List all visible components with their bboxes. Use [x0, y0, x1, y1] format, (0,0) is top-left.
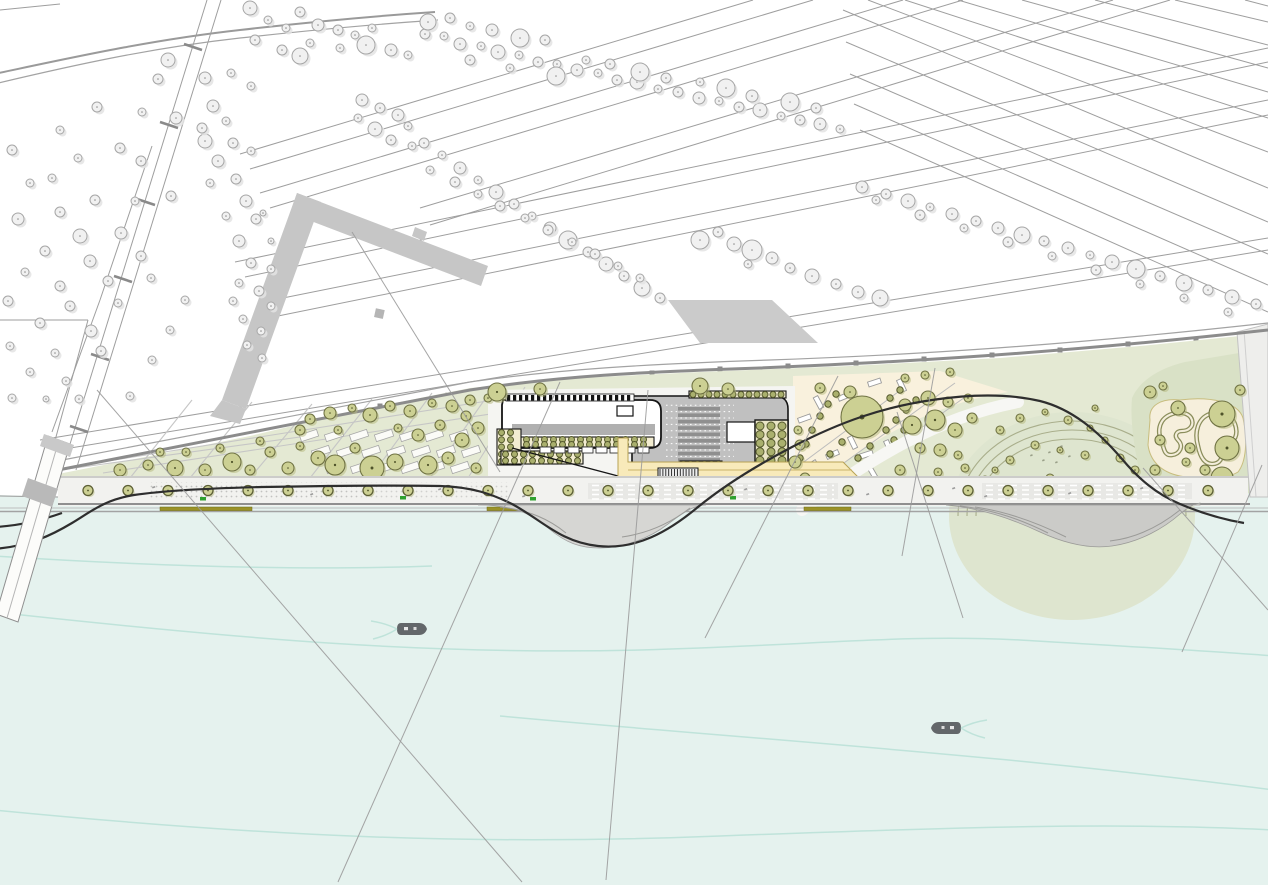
shrub-dot — [530, 458, 536, 464]
context-tree-center — [738, 106, 740, 108]
context-tree-center — [59, 211, 61, 213]
context-tree-center — [771, 257, 773, 259]
context-tree-center — [1207, 289, 1209, 291]
street-tree-center — [847, 490, 849, 492]
context-tree-center — [374, 128, 376, 130]
park-tree-center — [971, 417, 973, 419]
park-tree-center — [1162, 385, 1164, 387]
context-tree-center — [281, 49, 283, 51]
context-tree-center — [249, 7, 251, 9]
park-tree-center — [1034, 444, 1036, 446]
park-tree-center — [417, 434, 419, 436]
context-tree-center — [811, 275, 813, 277]
hall-bench — [540, 447, 551, 453]
shrub-dot — [539, 458, 545, 464]
plaza-tree — [893, 417, 899, 423]
facade-hatch-bar — [615, 395, 618, 401]
plaza-tree — [855, 455, 861, 461]
context-tree-center — [45, 398, 47, 400]
context-tree-center — [29, 182, 31, 184]
shrub-dot — [512, 458, 518, 464]
context-tree-center — [585, 59, 587, 61]
hatch-bars — [507, 395, 630, 401]
context-tree-center — [204, 140, 206, 142]
context-tree-center — [875, 199, 877, 201]
park-tree-center — [334, 464, 336, 466]
park-tree-center — [439, 424, 441, 426]
context-tree-center — [390, 139, 392, 141]
park-tree-center — [949, 371, 951, 373]
park-tree-center — [727, 388, 729, 390]
park-tree-center — [939, 449, 941, 451]
context-tree-center — [90, 330, 92, 332]
boat-window — [414, 627, 417, 630]
context-tree-center — [919, 214, 921, 216]
context-tree-center — [1051, 255, 1053, 257]
context-tree-center — [261, 357, 263, 359]
facade-hatch-bar — [567, 395, 570, 401]
boat-window — [942, 726, 945, 729]
context-tree-center — [429, 169, 431, 171]
hall-gray-strip — [512, 424, 655, 435]
plaza-tree — [867, 443, 873, 449]
park-tree-center — [954, 429, 956, 431]
facade-hatch-bar — [603, 395, 606, 401]
context-tree-center — [499, 205, 501, 207]
context-tree-center — [225, 215, 227, 217]
court-shrub — [767, 422, 775, 430]
park-tree-center — [699, 385, 701, 387]
street-tree-center — [407, 490, 409, 492]
context-tree-center — [571, 241, 573, 243]
site-plan-svg — [0, 0, 1268, 885]
court-shrub — [756, 422, 764, 430]
street-tree-center — [687, 490, 689, 492]
park-tree-center — [1159, 439, 1161, 441]
park-tree-center — [964, 467, 966, 469]
street-tree-center — [567, 490, 569, 492]
context-tree-center — [157, 78, 159, 80]
context-tree-center — [733, 243, 735, 245]
park-tree-center — [1067, 419, 1069, 421]
context-tree-center — [107, 280, 109, 282]
park-tree-center — [299, 445, 301, 447]
rooflight — [617, 406, 633, 416]
park-tree-center — [337, 429, 339, 431]
context-tree-center — [480, 45, 482, 47]
context-tree-center — [270, 305, 272, 307]
context-tree-center — [677, 91, 679, 93]
context-tree-center — [513, 203, 515, 205]
green-marker — [200, 497, 206, 501]
park-tree-center — [819, 387, 821, 389]
parking-stripe — [678, 420, 720, 424]
park-tree-center — [204, 469, 206, 471]
context-tree-center — [459, 43, 461, 45]
park-tree-center — [899, 469, 901, 471]
park-tree-center — [994, 469, 996, 471]
context-tree-center — [929, 206, 931, 208]
hall-bench — [568, 447, 579, 453]
context-tree-center — [255, 218, 257, 220]
park-tree-center — [409, 410, 411, 412]
context-tree-center — [477, 179, 479, 181]
context-tree-center — [96, 106, 98, 108]
context-tree-center — [120, 232, 122, 234]
context-tree-center — [459, 167, 461, 169]
context-tree-center — [299, 11, 301, 13]
shrub-dot — [503, 451, 509, 457]
park-tree-center — [1149, 391, 1151, 393]
park-tree-center — [269, 451, 271, 453]
park-tree-center — [431, 402, 433, 404]
parking-stripe — [678, 452, 720, 456]
park-tree-center — [259, 440, 261, 442]
facade-hatch-bar — [573, 395, 576, 401]
context-tree-center — [1089, 254, 1091, 256]
park-tree-center — [927, 397, 929, 399]
park-tree-center — [1154, 469, 1156, 471]
park-tree-center — [1189, 447, 1191, 449]
context-tree-center — [639, 277, 641, 279]
context-tree-center — [597, 72, 599, 74]
context-tree-center — [232, 300, 234, 302]
parking-stripe — [678, 439, 720, 443]
park-tree-center — [904, 377, 906, 379]
park-tree-center — [799, 444, 801, 446]
court-shrub — [756, 448, 764, 456]
context-tree-center — [270, 240, 272, 242]
context-tree-center — [497, 51, 499, 53]
context-tree-center — [89, 260, 91, 262]
context-tree-center — [576, 69, 578, 71]
context-tree-center — [1043, 240, 1045, 242]
context-tree-center — [509, 67, 511, 69]
context-tree-center — [477, 193, 479, 195]
context-tree-center — [379, 107, 381, 109]
context-tree-center — [246, 344, 248, 346]
park-tree-center — [119, 469, 121, 471]
context-tree-center — [250, 150, 252, 152]
context-tree-center — [258, 290, 260, 292]
context-tree-center — [238, 282, 240, 284]
facade-hatch-bar — [579, 395, 582, 401]
boat-hull — [931, 722, 961, 734]
park-tree-center — [147, 464, 149, 466]
shrub-dot — [499, 444, 505, 450]
context-tree-center — [725, 87, 727, 89]
context-tree-center — [29, 371, 31, 373]
context-tree-center — [24, 271, 26, 273]
context-tree-center — [129, 395, 131, 397]
hall-bench — [582, 447, 593, 453]
context-tree-center — [423, 142, 425, 144]
context-tree-center — [556, 63, 558, 65]
park-tree-center — [1009, 459, 1011, 461]
shrub-dot — [508, 444, 514, 450]
context-tree-center — [260, 330, 262, 332]
context-tree-center — [835, 283, 837, 285]
boat-cabin — [404, 627, 408, 630]
shrub-dot — [770, 392, 776, 398]
street-tree-center — [287, 490, 289, 492]
context-tree-center — [169, 329, 171, 331]
context-tree-center — [759, 109, 761, 111]
plaza-tree — [825, 401, 831, 407]
facade-hatch-bar — [627, 395, 630, 401]
park-tree-center — [957, 454, 959, 456]
plaza-tree — [897, 387, 903, 393]
context-tree-center — [309, 42, 311, 44]
context-tree-center — [665, 77, 667, 79]
context-tree-center — [11, 149, 13, 151]
context-tree-center — [245, 200, 247, 202]
park-tree-center — [849, 391, 851, 393]
park-tree-center — [447, 457, 449, 459]
green-marker — [400, 496, 406, 500]
context-tree-center — [140, 255, 142, 257]
context-tree-center — [9, 345, 11, 347]
context-tree-center — [141, 111, 143, 113]
context-tree-center — [365, 44, 367, 46]
context-tree-center — [747, 263, 749, 265]
context-tree-center — [254, 39, 256, 41]
context-tree-center — [1227, 311, 1229, 313]
context-tree-center — [1183, 282, 1185, 284]
context-tree-center — [1021, 234, 1023, 236]
park-tree-center — [475, 467, 477, 469]
shrub-dot — [499, 437, 505, 443]
park-tree-center — [1019, 417, 1021, 419]
context-tree-center — [317, 24, 319, 26]
context-tree-center — [751, 249, 753, 251]
context-tree-center — [587, 251, 589, 253]
context-tree-center — [77, 157, 79, 159]
context-tree-center — [1135, 268, 1137, 270]
park-tree-center — [1094, 407, 1096, 409]
boat-cabin — [950, 726, 954, 729]
context-tree-center — [167, 59, 169, 61]
context-tree-center — [1231, 296, 1233, 298]
parking-stripe — [678, 407, 720, 411]
park-tree-center — [219, 447, 221, 449]
street-tree-center — [127, 490, 129, 492]
context-tree-center — [997, 227, 999, 229]
park-tree-center — [1226, 447, 1229, 450]
context-tree-center — [491, 29, 493, 31]
context-tree-center — [59, 285, 61, 287]
street-tree-center — [367, 490, 369, 492]
street-tree-center — [607, 490, 609, 492]
context-tree-center — [151, 359, 153, 361]
street-tree-center — [1207, 490, 1209, 492]
street-tree-center — [767, 490, 769, 492]
street-tree-center — [647, 490, 649, 492]
dock-strip — [804, 507, 851, 511]
context-tree-center — [495, 191, 497, 193]
facade-hatch-bar — [513, 395, 516, 401]
context-tree-center — [250, 262, 252, 264]
context-tree-center — [657, 88, 659, 90]
park-tree-center — [797, 429, 799, 431]
court-shrub — [778, 431, 786, 439]
park-tree-center — [999, 429, 1001, 431]
context-tree-center — [524, 217, 526, 219]
context-tree-center — [11, 397, 13, 399]
court-shrub — [767, 439, 775, 447]
context-tree-center — [134, 200, 136, 202]
context-tree-center — [861, 186, 863, 188]
context-tree-center — [390, 49, 392, 51]
context-tree-center — [354, 34, 356, 36]
green-marker — [530, 497, 536, 501]
context-tree-center — [1139, 283, 1141, 285]
context-tree-center — [150, 277, 152, 279]
park-tree-center — [397, 427, 399, 429]
park-tree-center — [159, 451, 161, 453]
park-tree-center — [309, 418, 311, 420]
street-tree-center — [1127, 490, 1129, 492]
park-tree-center — [351, 407, 353, 409]
plaza-tree — [839, 439, 845, 445]
shrub-dot — [508, 437, 514, 443]
shrub-dot — [512, 451, 518, 457]
context-tree-center — [975, 220, 977, 222]
context-tree-center — [17, 218, 19, 220]
context-tree-center — [250, 85, 252, 87]
context-tree-center — [427, 21, 429, 23]
park-tree-center — [231, 461, 233, 463]
context-tree-center — [641, 287, 643, 289]
context-tree-center — [1067, 247, 1069, 249]
street-tree-center — [527, 490, 529, 492]
park-tree-center — [461, 439, 463, 441]
context-tree-center — [175, 117, 177, 119]
context-tree-center — [616, 79, 618, 81]
street-tree-center — [927, 490, 929, 492]
park-tree-center — [369, 414, 371, 416]
facade-hatch-bar — [561, 395, 564, 401]
park-tree-center — [1044, 411, 1046, 413]
facade-hatch-bar — [591, 395, 594, 401]
park-tree-center — [1185, 461, 1187, 463]
context-tree-center — [815, 107, 817, 109]
plaza-tree — [833, 391, 839, 397]
context-tree-center — [879, 297, 881, 299]
street-tree-center — [807, 490, 809, 492]
shrub-dot — [754, 392, 760, 398]
context-tree-center — [262, 212, 264, 214]
park-tree-center — [924, 374, 926, 376]
hall-bench — [554, 447, 565, 453]
facade-hatch-bar — [621, 395, 624, 401]
context-tree-center — [235, 178, 237, 180]
shrub-dot — [778, 392, 784, 398]
context-tree-center — [717, 231, 719, 233]
context-tree-center — [225, 120, 227, 122]
context-tree-center — [54, 352, 56, 354]
park-tree-center — [1204, 469, 1206, 471]
context-tree-center — [698, 97, 700, 99]
dock-strip — [160, 507, 252, 511]
court-notch — [727, 422, 755, 442]
facade-hatch-bar — [585, 395, 588, 401]
park-tree-center — [487, 397, 489, 399]
park-tree-center — [967, 397, 969, 399]
context-tree-center — [51, 177, 53, 179]
street-tree-center — [1047, 490, 1049, 492]
context-tree-center — [424, 33, 426, 35]
context-tree-center — [659, 297, 661, 299]
court-shrub — [767, 448, 775, 456]
street-tree-center — [967, 490, 969, 492]
context-tree-center — [94, 199, 96, 201]
park-tree-center — [329, 412, 331, 414]
context-tree-center — [371, 27, 373, 29]
park-tree-center — [394, 461, 396, 463]
boat-hull — [397, 623, 427, 635]
street-tree-center — [87, 490, 89, 492]
context-tree-center — [232, 142, 234, 144]
plaza-tree — [887, 395, 893, 401]
context-tree-center — [201, 127, 203, 129]
context-tree-center — [242, 318, 244, 320]
context-tree-center — [65, 380, 67, 382]
street-tree-center — [1087, 490, 1089, 492]
context-tree-center — [594, 253, 596, 255]
context-tree-center — [544, 39, 546, 41]
park-tree-center — [427, 464, 429, 466]
site-plan-frame — [0, 0, 1268, 885]
context-tree-center — [238, 240, 240, 242]
context-tree-center — [140, 160, 142, 162]
park-tree-center — [947, 401, 949, 403]
context-tree-center — [469, 59, 471, 61]
context-tree-center — [699, 239, 701, 241]
street-tree-center — [447, 490, 449, 492]
parking-stripe — [678, 426, 720, 430]
street-tree-center — [887, 490, 889, 492]
context-tree-center — [397, 114, 399, 116]
parking-stripe — [678, 433, 720, 437]
park-tree-center — [299, 429, 301, 431]
plaza-tree — [883, 427, 889, 433]
context-tree-center — [605, 263, 607, 265]
street-tree-center — [727, 490, 729, 492]
park-tree-center — [477, 427, 479, 429]
context-tree-center — [59, 129, 61, 131]
context-tree-center — [1255, 303, 1257, 305]
park-tree-center — [911, 424, 913, 426]
context-tree-center — [78, 398, 80, 400]
context-tree-center — [623, 275, 625, 277]
street-tree-center — [327, 490, 329, 492]
parking-stripe — [678, 445, 720, 449]
facade-hatch-bar — [531, 395, 534, 401]
context-tree-center — [963, 227, 965, 229]
context-tree-center — [555, 75, 557, 77]
park-tree-center — [539, 388, 541, 390]
court-shrub — [756, 439, 764, 447]
park-tree-center — [1177, 407, 1179, 409]
context-tree-center — [1159, 275, 1161, 277]
context-tree-center — [1111, 261, 1113, 263]
context-tree-center — [361, 99, 363, 101]
context-tree-center — [751, 95, 753, 97]
context-tree-center — [718, 100, 720, 102]
context-tree-center — [547, 229, 549, 231]
shrub-dot — [524, 442, 530, 448]
